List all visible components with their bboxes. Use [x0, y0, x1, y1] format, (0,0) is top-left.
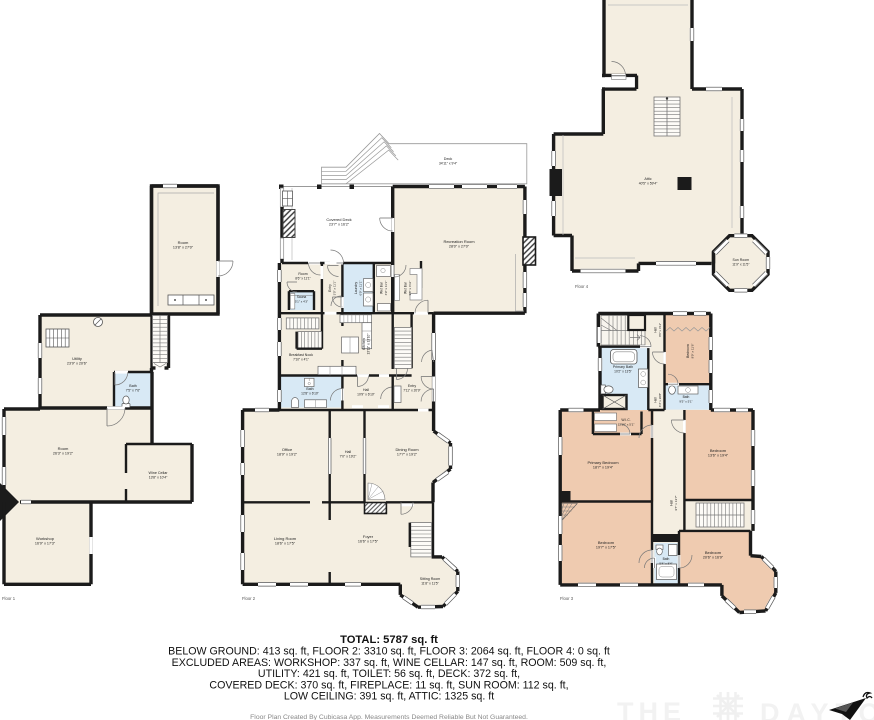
svg-text:Bedroom: Bedroom: [598, 540, 615, 545]
svg-text:13'8" x 27'0": 13'8" x 27'0": [173, 246, 194, 250]
svg-text:9'7" x 13'7": 9'7" x 13'7": [674, 495, 678, 510]
svg-text:23'9" x 20'6": 23'9" x 20'6": [67, 362, 88, 366]
svg-text:Deck: Deck: [444, 157, 453, 161]
svg-text:3'4" x 20'8": 3'4" x 20'8": [658, 393, 662, 407]
svg-text:EXCLUDED AREAS: WORKSHOP: 337: EXCLUDED AREAS: WORKSHOP: 337 sq. ft, WI…: [172, 657, 607, 669]
svg-text:16'6" x 17'5": 16'6" x 17'5": [358, 540, 379, 544]
svg-text:18'7" x 19'4": 18'7" x 19'4": [593, 466, 614, 470]
svg-text:Living Room: Living Room: [274, 536, 297, 541]
svg-text:34'11" x 9'4": 34'11" x 9'4": [439, 162, 458, 166]
svg-text:COVERED DECK: 370 sq. ft, FIRE: COVERED DECK: 370 sq. ft, FIREPLACE: 11 …: [209, 679, 568, 691]
svg-text:3'9" x 11'1": 3'9" x 11'1": [384, 281, 388, 296]
svg-text:Hall: Hall: [654, 327, 658, 333]
svg-text:7'11" x 20'9": 7'11" x 20'9": [403, 389, 420, 393]
svg-text:Room: Room: [298, 272, 307, 276]
svg-text:3'6" x 4'11": 3'6" x 4'11": [658, 323, 662, 337]
svg-text:Utility: Utility: [72, 356, 82, 361]
svg-text:7'5" x 7'6": 7'5" x 7'6": [126, 389, 141, 393]
svg-text:Bath: Bath: [306, 387, 313, 391]
svg-text:9'5" x 5'1": 9'5" x 5'1": [679, 400, 692, 404]
svg-text:Dining Room: Dining Room: [395, 447, 419, 452]
svg-text:Room: Room: [58, 446, 69, 451]
svg-text:Wine Cellar: Wine Cellar: [148, 471, 168, 475]
svg-text:Breakfast Nook: Breakfast Nook: [289, 353, 313, 357]
svg-text:Sauna: Sauna: [297, 295, 307, 299]
svg-text:13'11" x 13'10": 13'11" x 13'10": [367, 334, 371, 355]
svg-text:Sun Room: Sun Room: [733, 258, 750, 262]
svg-text:LOW CEILING: 391 sq. ft, ATTIC: LOW CEILING: 391 sq. ft, ATTIC: 1325 sq.…: [284, 691, 494, 703]
svg-text:Floor Plan Created By Cubicasa: Floor Plan Created By Cubicasa App. Meas…: [250, 714, 528, 720]
svg-text:20'6" x 16'9": 20'6" x 16'9": [703, 556, 724, 560]
svg-text:Workshop: Workshop: [36, 536, 55, 541]
svg-text:Bath: Bath: [683, 395, 690, 399]
svg-text:Floor 3: Floor 3: [560, 596, 574, 601]
svg-text:Laundry: Laundry: [354, 282, 358, 295]
svg-text:19'7" x 17'5": 19'7" x 17'5": [596, 546, 617, 550]
svg-text:11'9" x 11'5": 11'9" x 11'5": [732, 263, 749, 267]
svg-text:3'0" x 11'1": 3'0" x 11'1": [333, 281, 337, 296]
svg-text:18'9" x 19'2": 18'9" x 19'2": [277, 453, 298, 457]
svg-text:Bedroom: Bedroom: [705, 550, 722, 555]
svg-text:Office: Office: [282, 447, 293, 452]
svg-text:Attic: Attic: [644, 177, 651, 181]
svg-text:17'7" x 19'2": 17'7" x 19'2": [397, 453, 418, 457]
svg-text:13'8" x 10'4": 13'8" x 10'4": [149, 476, 168, 480]
svg-text:11'8" x 11'5": 11'8" x 11'5": [421, 582, 439, 586]
svg-text:7'10" x 4'1": 7'10" x 4'1": [293, 358, 309, 362]
svg-text:Kitchen: Kitchen: [362, 338, 366, 350]
svg-text:Wet Bar: Wet Bar: [380, 281, 384, 294]
svg-text:Wet Bar: Wet Bar: [404, 281, 408, 294]
svg-text:Hall: Hall: [654, 397, 658, 403]
svg-text:16'9" x 17'3": 16'9" x 17'3": [35, 542, 56, 546]
svg-text:W.I.C.: W.I.C.: [621, 418, 630, 422]
svg-text:Bedroom: Bedroom: [686, 344, 690, 358]
svg-text:Primary Bedroom: Primary Bedroom: [587, 460, 619, 465]
svg-text:Foyer: Foyer: [363, 534, 374, 539]
svg-text:23'7" x 16'2": 23'7" x 16'2": [329, 223, 350, 227]
svg-text:Entry: Entry: [328, 284, 332, 292]
svg-text:5'4" x 8'4": 5'4" x 8'4": [659, 562, 672, 566]
svg-text:UTILITY: 421 sq. ft, TOILET: 5: UTILITY: 421 sq. ft, TOILET: 56 sq. ft, …: [258, 668, 520, 680]
svg-text:THE: THE: [617, 697, 686, 720]
svg-text:13'6" x 19'4": 13'6" x 19'4": [708, 454, 729, 458]
svg-text:Sitting Room: Sitting Room: [420, 577, 441, 581]
svg-text:Floor 2: Floor 2: [242, 596, 256, 601]
svg-text:10'9" x 6'10": 10'9" x 6'10": [357, 393, 375, 397]
svg-text:Hall: Hall: [363, 388, 369, 392]
svg-text:8'6" x 11'1": 8'6" x 11'1": [295, 277, 311, 281]
svg-text:7'0" x 19'2": 7'0" x 19'2": [340, 455, 358, 459]
svg-text:Floor 1: Floor 1: [2, 596, 16, 601]
svg-text:6'9" x 11'1": 6'9" x 11'1": [359, 280, 363, 295]
svg-text:9'9" x 11'6": 9'9" x 11'6": [691, 343, 695, 358]
svg-text:Entry: Entry: [408, 384, 416, 388]
svg-text:28'0" x 27'0": 28'0" x 27'0": [449, 245, 470, 249]
svg-text:Primary Bath: Primary Bath: [613, 365, 633, 369]
svg-text:9'8" x 4'11": 9'8" x 4'11": [408, 281, 412, 296]
svg-text:Covered Deck: Covered Deck: [326, 217, 351, 222]
svg-text:TOTAL: 5787 sq. ft: TOTAL: 5787 sq. ft: [340, 634, 438, 646]
svg-text:Bedroom: Bedroom: [710, 448, 727, 453]
svg-text:10'2" x 13'5": 10'2" x 13'5": [614, 370, 632, 374]
svg-text:Hall: Hall: [670, 500, 674, 506]
svg-text:11'10" x 5'1": 11'10" x 5'1": [618, 423, 635, 427]
svg-text:Bath: Bath: [663, 557, 670, 561]
svg-text:Room: Room: [178, 240, 189, 245]
svg-text:5'1" x 4'3": 5'1" x 4'3": [295, 300, 308, 304]
svg-text:12'8" x 6'10": 12'8" x 6'10": [301, 392, 319, 396]
svg-text:Floor 4: Floor 4: [575, 284, 589, 289]
svg-text:18'6" x 17'5": 18'6" x 17'5": [275, 542, 296, 546]
svg-text:BELOW GROUND: 413 sq. ft, FLOO: BELOW GROUND: 413 sq. ft, FLOOR 2: 3310 …: [168, 646, 610, 658]
svg-text:26'3" x 19'2": 26'3" x 19'2": [53, 452, 74, 456]
svg-text:Bath: Bath: [129, 384, 136, 388]
svg-text:40'5" x 59'4": 40'5" x 59'4": [639, 182, 658, 186]
svg-text:Hall: Hall: [345, 450, 352, 454]
svg-text:Recreation Room: Recreation Room: [443, 239, 475, 244]
